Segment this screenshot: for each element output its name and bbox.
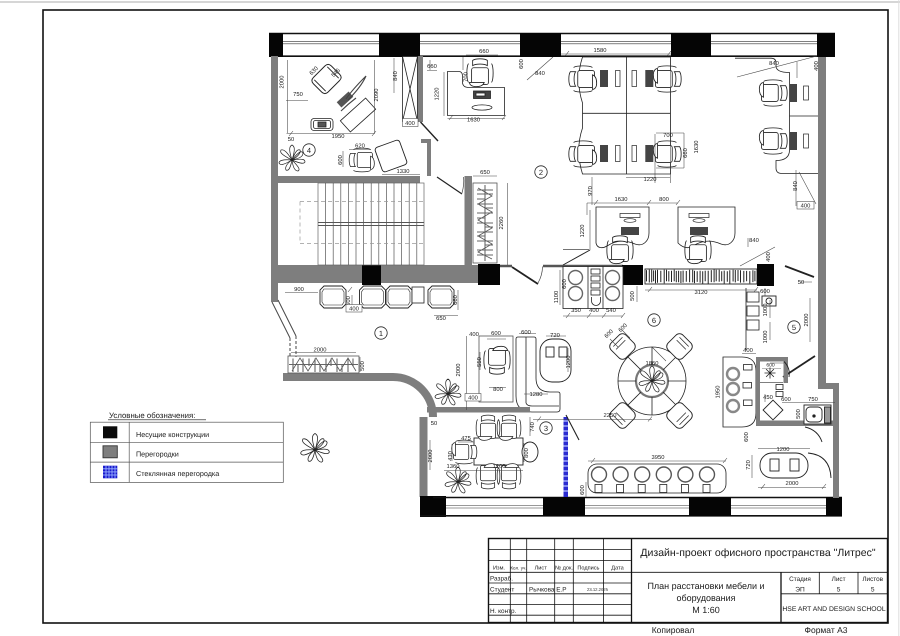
svg-text:Формат А3: Формат А3: [805, 625, 848, 635]
svg-text:1200: 1200: [493, 463, 506, 470]
svg-text:Разраб.: Разраб.: [490, 576, 513, 583]
svg-text:660: 660: [682, 148, 689, 158]
svg-text:800: 800: [493, 386, 503, 393]
svg-text:1860: 1860: [646, 360, 659, 367]
svg-text:600: 600: [760, 288, 770, 295]
svg-text:50: 50: [798, 279, 804, 286]
svg-text:1330: 1330: [397, 168, 410, 175]
svg-text:400: 400: [801, 203, 811, 210]
svg-text:2: 2: [539, 168, 543, 177]
svg-text:1280: 1280: [530, 391, 543, 398]
svg-text:600: 600: [766, 363, 775, 369]
svg-text:Условные обозначения:: Условные обозначения:: [109, 411, 195, 420]
svg-text:1000: 1000: [762, 304, 769, 317]
svg-text:2000: 2000: [786, 480, 799, 487]
svg-text:840: 840: [535, 70, 545, 77]
svg-text:1630: 1630: [693, 141, 700, 154]
svg-text:1100: 1100: [553, 291, 560, 303]
svg-text:840: 840: [792, 181, 799, 191]
svg-text:3120: 3120: [695, 289, 708, 296]
svg-text:1630: 1630: [615, 196, 628, 203]
svg-text:620: 620: [355, 143, 365, 150]
svg-text:400: 400: [765, 252, 772, 262]
svg-text:840: 840: [769, 60, 779, 67]
svg-text:5: 5: [837, 587, 841, 594]
svg-text:600: 600: [617, 322, 629, 334]
svg-text:6: 6: [652, 316, 656, 325]
svg-text:430: 430: [447, 451, 454, 461]
svg-text:1: 1: [379, 329, 383, 338]
svg-text:740: 740: [529, 422, 536, 432]
svg-text:540: 540: [606, 307, 616, 314]
svg-text:750: 750: [293, 91, 303, 98]
svg-text:1220: 1220: [579, 225, 586, 238]
svg-text:Стадия: Стадия: [789, 576, 811, 583]
svg-text:1200: 1200: [565, 356, 572, 369]
svg-text:400: 400: [813, 61, 820, 71]
svg-text:План расстановки мебели и: План расстановки мебели и: [647, 581, 764, 591]
svg-text:1220: 1220: [434, 88, 441, 101]
svg-text:840: 840: [749, 237, 759, 244]
svg-text:1200: 1200: [777, 446, 790, 453]
svg-text:750: 750: [808, 396, 818, 403]
svg-text:800: 800: [523, 448, 530, 458]
svg-text:400: 400: [349, 306, 359, 313]
svg-text:350: 350: [571, 307, 581, 314]
svg-text:600: 600: [521, 329, 531, 336]
svg-text:650: 650: [480, 169, 490, 176]
svg-text:700: 700: [463, 72, 470, 82]
svg-text:400: 400: [589, 307, 599, 314]
svg-text:840: 840: [392, 71, 399, 81]
svg-text:1950: 1950: [332, 133, 345, 140]
svg-text:600: 600: [579, 485, 586, 495]
svg-text:660: 660: [479, 48, 489, 55]
svg-text:23.12.2025: 23.12.2025: [587, 587, 609, 592]
svg-text:2000: 2000: [314, 347, 327, 354]
svg-text:500: 500: [359, 361, 366, 371]
svg-text:550: 550: [476, 357, 483, 367]
svg-text:М 1:60: М 1:60: [692, 605, 720, 615]
svg-text:2000: 2000: [427, 450, 434, 463]
svg-text:5: 5: [792, 323, 796, 332]
svg-text:600: 600: [603, 328, 615, 340]
svg-text:720: 720: [550, 332, 560, 339]
svg-text:Листов: Листов: [862, 576, 883, 583]
svg-text:970: 970: [587, 186, 594, 196]
svg-text:Студент: Студент: [490, 587, 514, 594]
svg-text:1360: 1360: [447, 463, 460, 470]
svg-text:3: 3: [544, 424, 548, 433]
svg-text:900: 900: [294, 286, 304, 293]
svg-text:Перегородки: Перегородки: [136, 450, 179, 459]
svg-text:600: 600: [561, 279, 568, 289]
svg-text:2090: 2090: [373, 89, 380, 102]
svg-text:Подпись: Подпись: [577, 566, 599, 572]
svg-text:Рычкова Е.Р: Рычкова Е.Р: [529, 587, 567, 594]
svg-text:450: 450: [763, 394, 773, 401]
svg-text:400: 400: [468, 395, 478, 402]
svg-text:2000: 2000: [455, 364, 462, 377]
svg-text:600: 600: [781, 396, 791, 403]
svg-text:HSE ART AND DESIGN SCHOOL: HSE ART AND DESIGN SCHOOL: [782, 606, 885, 613]
svg-text:500: 500: [795, 409, 802, 419]
svg-text:Н. контр.: Н. контр.: [490, 608, 517, 615]
svg-text:700: 700: [663, 132, 673, 139]
svg-text:660: 660: [427, 63, 437, 70]
svg-text:1630: 1630: [467, 117, 480, 124]
svg-text:720: 720: [745, 460, 752, 470]
svg-text:№ док.: № док.: [555, 566, 573, 572]
svg-text:Лист: Лист: [535, 566, 548, 572]
svg-text:400: 400: [743, 347, 753, 354]
svg-text:1950: 1950: [715, 386, 722, 399]
svg-text:400: 400: [469, 331, 479, 338]
svg-text:5: 5: [871, 587, 875, 594]
svg-text:Дизайн-проект офисного простра: Дизайн-проект офисного пространства "Лит…: [640, 547, 875, 559]
svg-text:475: 475: [461, 436, 471, 442]
svg-text:660: 660: [452, 295, 459, 305]
svg-text:400: 400: [405, 120, 415, 127]
svg-text:2000: 2000: [279, 76, 286, 89]
svg-text:Лист: Лист: [832, 576, 846, 583]
svg-text:Дата: Дата: [611, 566, 624, 572]
svg-text:3950: 3950: [652, 454, 665, 461]
svg-text:1220: 1220: [644, 176, 657, 183]
svg-text:600: 600: [337, 155, 344, 165]
svg-text:2250: 2250: [604, 412, 617, 419]
svg-text:Кол. уч.: Кол. уч.: [510, 566, 526, 571]
svg-text:1000: 1000: [762, 331, 769, 344]
svg-text:Несущие конструкции: Несущие конструкции: [136, 430, 209, 439]
svg-text:4: 4: [307, 146, 311, 155]
svg-text:600: 600: [743, 432, 750, 442]
svg-text:ЭП: ЭП: [795, 587, 805, 594]
svg-text:Копировал: Копировал: [652, 625, 695, 635]
svg-text:800: 800: [659, 196, 669, 203]
svg-text:1580: 1580: [594, 47, 607, 54]
svg-text:Изм.: Изм.: [493, 566, 505, 572]
svg-text:2000: 2000: [803, 314, 810, 327]
svg-text:50: 50: [288, 136, 294, 143]
svg-text:оборудования: оборудования: [676, 593, 735, 603]
svg-text:500: 500: [629, 291, 636, 301]
svg-text:Стеклянная перегородка: Стеклянная перегородка: [136, 469, 219, 478]
svg-text:650: 650: [436, 315, 446, 322]
svg-text:2260: 2260: [498, 217, 505, 230]
svg-text:50: 50: [431, 420, 437, 427]
svg-text:600: 600: [518, 59, 525, 69]
svg-text:600: 600: [491, 330, 501, 337]
